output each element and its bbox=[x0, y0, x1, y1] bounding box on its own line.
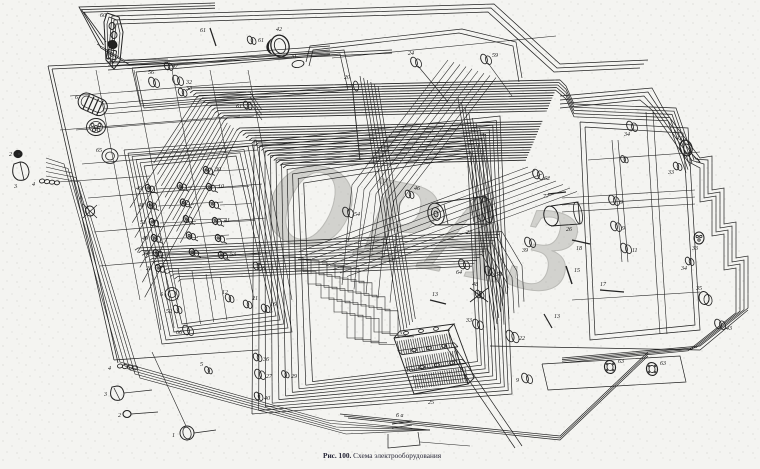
svg-text:Рис. 100. Схема электрооборудо: Рис. 100. Схема электрооборудования bbox=[323, 451, 442, 460]
